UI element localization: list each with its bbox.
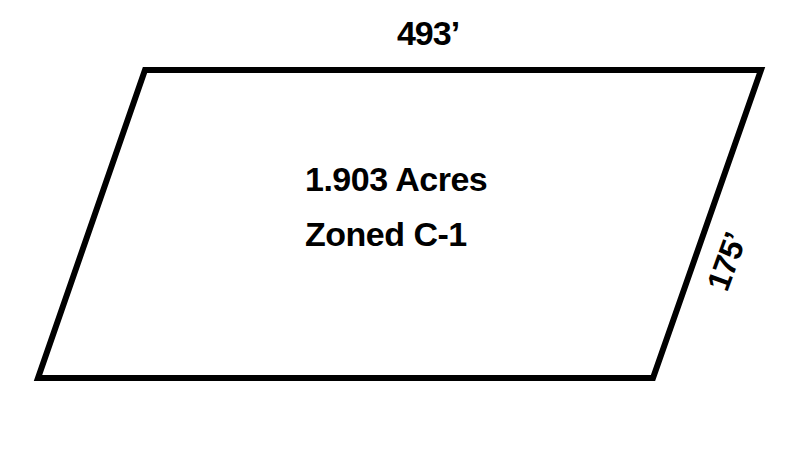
parcel-diagram: 493’ 1.903 Acres Zoned C-1 175’: [0, 0, 800, 451]
zoning-label: Zoned C-1: [305, 215, 487, 253]
top-dimension-label: 493’: [397, 14, 459, 53]
area-label: 1.903 Acres: [305, 160, 487, 198]
parcel-info: 1.903 Acres Zoned C-1: [305, 160, 487, 253]
